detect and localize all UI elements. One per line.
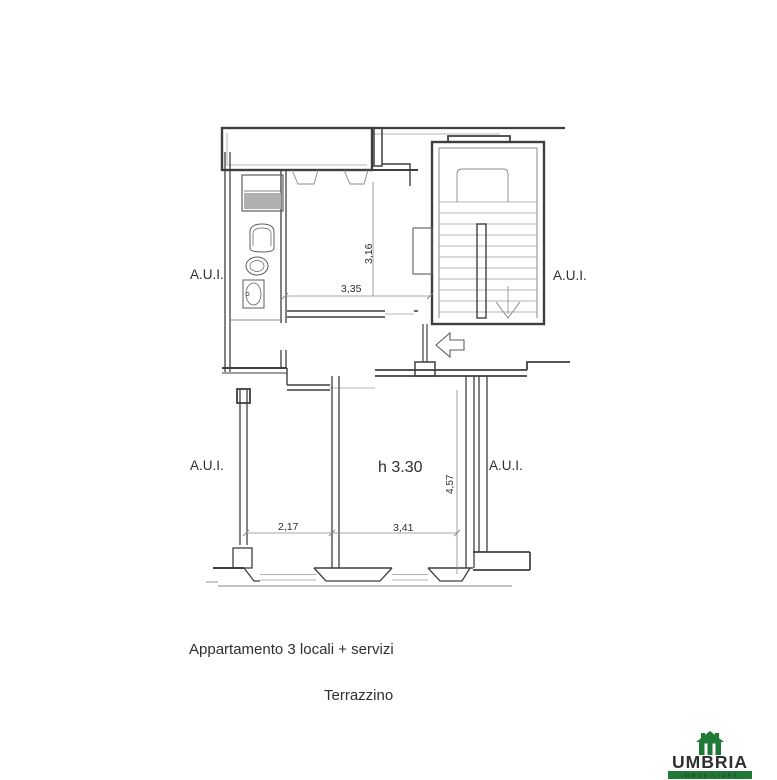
left-outer-wall-bottom (240, 389, 247, 545)
stair-landing-rail (457, 169, 508, 202)
mid-wall-post (415, 362, 435, 376)
plan-labels: A.U.I. A.U.I. A.U.I. A.U.I. h 3.30 3,16 … (189, 243, 587, 704)
bedroom-window-2 (344, 170, 368, 184)
mid-wall-center (287, 385, 330, 390)
aui-label-top-right: A.U.I. (553, 268, 587, 283)
dim-label-457: 4,57 (445, 474, 456, 494)
corridor-wall (382, 164, 410, 186)
cabinet-shade (244, 193, 281, 209)
dim-label-335: 3,35 (341, 283, 362, 295)
middle-walls (222, 333, 570, 390)
loggia-wall (222, 128, 372, 170)
house-chimney-right (715, 733, 719, 740)
dim-label-341: 3,41 (393, 522, 414, 534)
far-right-wall (479, 376, 487, 552)
window-flare-right (428, 568, 470, 581)
aui-label-top-left: A.U.I. (190, 267, 224, 282)
window-sill-2 (392, 575, 428, 581)
logo-subtitle-text: IMMOBILIARE (681, 774, 739, 780)
entry-door-jamb (423, 324, 427, 362)
arrow-left-icon (436, 333, 464, 357)
house-roof (696, 731, 724, 742)
room-height-label: h 3.30 (378, 459, 423, 476)
caption-terrace: Terrazzino (324, 687, 393, 704)
toilet-icon (246, 257, 268, 275)
room-divider-wall (332, 376, 339, 568)
toilet-inner (250, 261, 264, 272)
bedroom-window-1 (292, 170, 318, 184)
sink-basin-icon (246, 283, 261, 305)
window-flare-center (314, 568, 392, 581)
terrace-band (206, 568, 512, 586)
window-flare-left (244, 568, 260, 581)
stair-treads (439, 202, 537, 312)
dimension-lines (243, 182, 460, 574)
mid-wall-right-step (527, 362, 570, 370)
left-bottom-post (233, 548, 252, 568)
stairwell (413, 136, 544, 362)
window-sill-1 (260, 575, 316, 581)
left-outer-wall-top (225, 152, 230, 372)
dim-label-316: 3,16 (363, 243, 375, 264)
scanned-floorplan-page: A.U.I. A.U.I. A.U.I. A.U.I. h 3.30 3,16 … (0, 0, 777, 780)
right-wall-stub (473, 552, 530, 570)
agency-logo: UMBRIA IMMOBILIARE (668, 731, 752, 780)
stair-stringer (477, 224, 486, 318)
room-right-wall (466, 376, 474, 568)
logo-brand-text: UMBRIA (672, 752, 748, 772)
caption-apartment: Appartamento 3 locali + servizi (189, 641, 394, 658)
floor-plan-svg: A.U.I. A.U.I. A.U.I. A.U.I. h 3.30 3,16 … (0, 0, 777, 780)
bathroom-fixtures (242, 175, 283, 308)
left-wall-post (237, 389, 250, 403)
stairwell-inner-wall (439, 148, 537, 318)
bidet-inner (253, 228, 271, 246)
stairwell-door-niche (413, 228, 432, 274)
loggia-inner-line (227, 133, 367, 165)
aui-label-bottom-left: A.U.I. (190, 458, 224, 473)
mid-wall-right (375, 370, 527, 376)
dim-label-217: 2,17 (278, 521, 299, 533)
aui-label-bottom-right: A.U.I. (489, 458, 523, 473)
house-chimney-left (701, 733, 705, 740)
